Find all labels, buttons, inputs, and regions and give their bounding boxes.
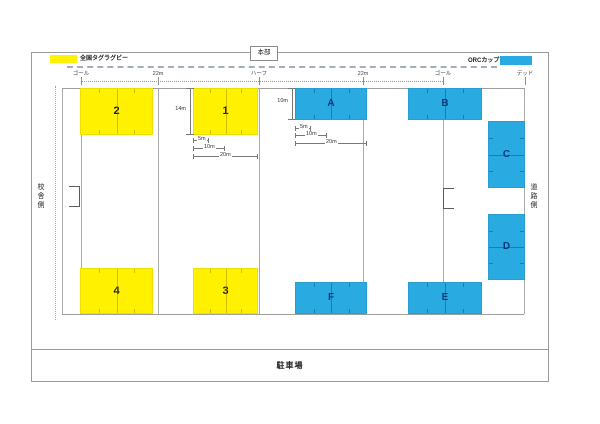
- court-tick: [349, 309, 350, 313]
- parking-area: 駐車場: [31, 349, 549, 382]
- parking-label: 駐車場: [277, 362, 304, 370]
- court-tick: [489, 171, 493, 172]
- dim-tick: [186, 88, 194, 89]
- dim-tick: [288, 119, 296, 120]
- goal-to-goal-dotted-line: [81, 81, 443, 82]
- court-tick: [314, 309, 315, 313]
- court-center-line: [226, 89, 227, 134]
- court-tick: [241, 130, 242, 134]
- dim-tick: [193, 146, 194, 151]
- line-22m-left: [158, 88, 159, 314]
- courtA-height-label: 10m: [272, 99, 289, 105]
- legend-blue-swatch: [500, 56, 532, 65]
- court-center-line: [226, 269, 227, 313]
- dim-tick: [186, 134, 194, 135]
- dim-tick: [295, 133, 296, 138]
- dim-tick: [366, 141, 367, 146]
- court-C: C: [488, 121, 525, 188]
- court-center-line: [117, 269, 118, 313]
- court-tick: [210, 269, 211, 273]
- courtA-20m-label: 20m: [325, 140, 338, 146]
- court-center-line: [445, 89, 446, 119]
- court-tick: [520, 138, 524, 139]
- dim-tick: [208, 138, 209, 143]
- dim-tick: [288, 88, 296, 89]
- court-tick: [314, 89, 315, 93]
- court-tick: [427, 309, 428, 313]
- legend-yellow-swatch: [50, 55, 77, 63]
- court-tick: [99, 89, 100, 93]
- court-tick: [210, 130, 211, 134]
- mark-tick: [81, 77, 82, 85]
- court-tick: [349, 283, 350, 287]
- court-tick: [99, 130, 100, 134]
- court-1: 1: [193, 88, 258, 135]
- court-center-line: [489, 155, 524, 156]
- headquarters-box: 本部: [250, 46, 278, 61]
- court-4: 4: [80, 268, 153, 314]
- court-F: F: [295, 282, 367, 314]
- court-tick: [241, 309, 242, 313]
- court-tick: [241, 269, 242, 273]
- court-tick: [349, 115, 350, 119]
- court-tick: [463, 283, 464, 287]
- dim-tick: [295, 141, 296, 146]
- court-center-line: [331, 89, 332, 119]
- court-3: 3: [193, 268, 258, 314]
- mark-tick: [158, 77, 159, 85]
- mark-tick: [363, 77, 364, 85]
- court-tick: [99, 269, 100, 273]
- school-side-label: 校舎側: [37, 183, 44, 210]
- court-tick: [210, 89, 211, 93]
- court-B: B: [408, 88, 482, 120]
- goalpost-left-icon: [69, 186, 80, 207]
- courtA-10m-label: 10m: [305, 132, 318, 138]
- court-center-line: [331, 283, 332, 313]
- court-tick: [241, 89, 242, 93]
- school-side-dotted-line: [55, 86, 56, 320]
- court-tick: [520, 263, 524, 264]
- court-tick: [463, 309, 464, 313]
- line-22m-right: [363, 88, 364, 314]
- court1-20m-label: 20m: [219, 153, 232, 159]
- court-tick: [489, 263, 493, 264]
- dim-tick: [193, 154, 194, 159]
- court-center-line: [489, 247, 524, 248]
- courtA-height-dim-line: [292, 88, 293, 120]
- court1-5m-label: 5m: [197, 137, 207, 143]
- perimeter-dashed-line: [67, 66, 497, 68]
- court-tick: [349, 89, 350, 93]
- mark-tick: [259, 77, 260, 85]
- court-tick: [489, 231, 493, 232]
- pitch-bottom-line: [62, 314, 524, 315]
- headquarters-label: 本部: [258, 50, 271, 57]
- dim-tick: [224, 146, 225, 151]
- dead-line-left: [62, 88, 63, 314]
- courtA-5m-label: 5m: [299, 125, 309, 131]
- court-A: A: [295, 88, 367, 120]
- court-tick: [134, 130, 135, 134]
- dim-tick: [295, 126, 296, 131]
- court-2: 2: [80, 88, 153, 135]
- court1-height-dim-line: [190, 88, 191, 135]
- court-tick: [463, 89, 464, 93]
- court-tick: [520, 231, 524, 232]
- halfway-line: [259, 88, 260, 314]
- court-tick: [314, 283, 315, 287]
- dim-tick: [326, 133, 327, 138]
- court-tick: [427, 115, 428, 119]
- court-center-line: [117, 89, 118, 134]
- court-tick: [210, 309, 211, 313]
- legend-tag-rugby-label: 全国タグラグビー: [80, 56, 128, 62]
- court1-10m-label: 10m: [203, 145, 216, 151]
- court-center-line: [445, 283, 446, 313]
- legend-orc-cup-label: ORCカップ: [468, 58, 498, 64]
- court-tick: [489, 138, 493, 139]
- dim-tick: [193, 138, 194, 143]
- field-layout-diagram: 全国タグラグビー 本部 ORCカップ ゴール 22m ハーフ 22m ゴール デ…: [0, 0, 600, 424]
- court1-height-label: 14m: [170, 107, 187, 113]
- court-tick: [134, 89, 135, 93]
- road-side-label: 道路側: [530, 183, 537, 210]
- court-D: D: [488, 214, 525, 280]
- court-E: E: [408, 282, 482, 314]
- court-tick: [134, 269, 135, 273]
- mark-tick: [443, 77, 444, 85]
- court-tick: [463, 115, 464, 119]
- court-tick: [99, 309, 100, 313]
- court-tick: [427, 89, 428, 93]
- court-tick: [134, 309, 135, 313]
- court-tick: [314, 115, 315, 119]
- court-tick: [520, 171, 524, 172]
- mark-tick: [525, 77, 526, 85]
- goalpost-right-icon: [443, 188, 454, 209]
- court-tick: [427, 283, 428, 287]
- dim-tick: [257, 154, 258, 159]
